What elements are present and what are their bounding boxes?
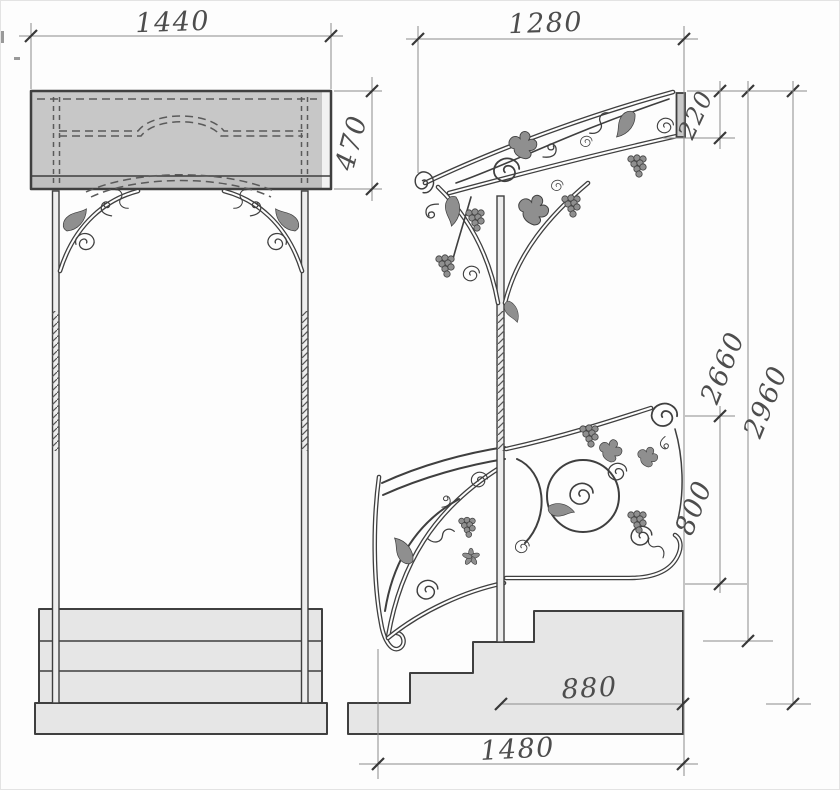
tendril-ornament [648, 538, 663, 558]
tendril-loop-ornament [540, 143, 557, 159]
side-view: 1280 220 2660 2960 [348, 7, 811, 779]
scroll-ornament [515, 540, 529, 552]
front-bracket-right [224, 189, 302, 271]
twisted-post-section [301, 311, 309, 451]
tendril-loop-ornament [658, 436, 671, 450]
scroll-ornament [657, 118, 673, 132]
scroll-ornament [463, 266, 479, 280]
dim-label-front-width: 1440 [135, 6, 211, 40]
front-view: 1440 470 [19, 6, 382, 734]
grape-cluster-ornament [628, 155, 646, 177]
dim-front-overall-width: 1440 [19, 6, 343, 89]
dim-label-landing-depth: 880 [561, 672, 619, 706]
dim-label-side-projection: 1280 [508, 7, 584, 41]
grape-cluster-ornament [436, 255, 454, 277]
dim-label-railing-height: 800 [669, 476, 719, 540]
front-canopy-box [31, 91, 331, 197]
front-bracket-left [60, 189, 138, 271]
vine-leaf-ornament [507, 130, 539, 162]
grape-cluster-ornament [459, 517, 476, 537]
vine-leaf-ornament [638, 447, 658, 467]
front-steps [35, 609, 327, 734]
dim-label-stair-run: 1480 [479, 732, 555, 767]
scroll-ornament [552, 180, 563, 190]
twisted-post-section [52, 311, 60, 451]
dim-side-height-to-landing: 2660 [694, 81, 773, 647]
scroll-ornament [608, 463, 626, 480]
canopy-technical-drawing: 1440 470 [1, 1, 840, 790]
dim-label-height-to-landing: 2660 [694, 327, 751, 409]
blueprint-sheet: 1440 470 [0, 0, 840, 790]
vine-leaf-ornament [600, 440, 622, 462]
grape-cluster-ornament [628, 511, 646, 533]
side-canopy [413, 92, 685, 322]
flower-ornament [462, 548, 480, 565]
dim-front-canopy-height: 470 [329, 77, 382, 201]
side-railing-stair-panel [375, 447, 505, 649]
grape-cluster-ornament [580, 425, 598, 447]
scroll-ornament [650, 402, 679, 429]
vine-leaf-ornament [519, 195, 549, 225]
scroll-ornament [417, 580, 438, 599]
acanthus-leaf-ornament [610, 109, 641, 137]
scan-artifacts [1, 31, 20, 60]
acanthus-leaf-ornament [546, 496, 575, 525]
acanthus-leaf-ornament [502, 300, 521, 322]
twisted-post-section [497, 311, 505, 451]
dim-label-overall-height: 2960 [737, 361, 794, 443]
dim-label-canopy-height: 470 [329, 112, 374, 175]
side-railing-landing-panel [506, 402, 682, 578]
scroll-ornament [570, 483, 593, 504]
side-post [497, 196, 505, 642]
front-post-left [52, 191, 60, 703]
tendril-loop-ornament [424, 203, 442, 220]
dim-side-railing-height: 800 [669, 406, 747, 593]
scroll-ornament [581, 136, 592, 146]
